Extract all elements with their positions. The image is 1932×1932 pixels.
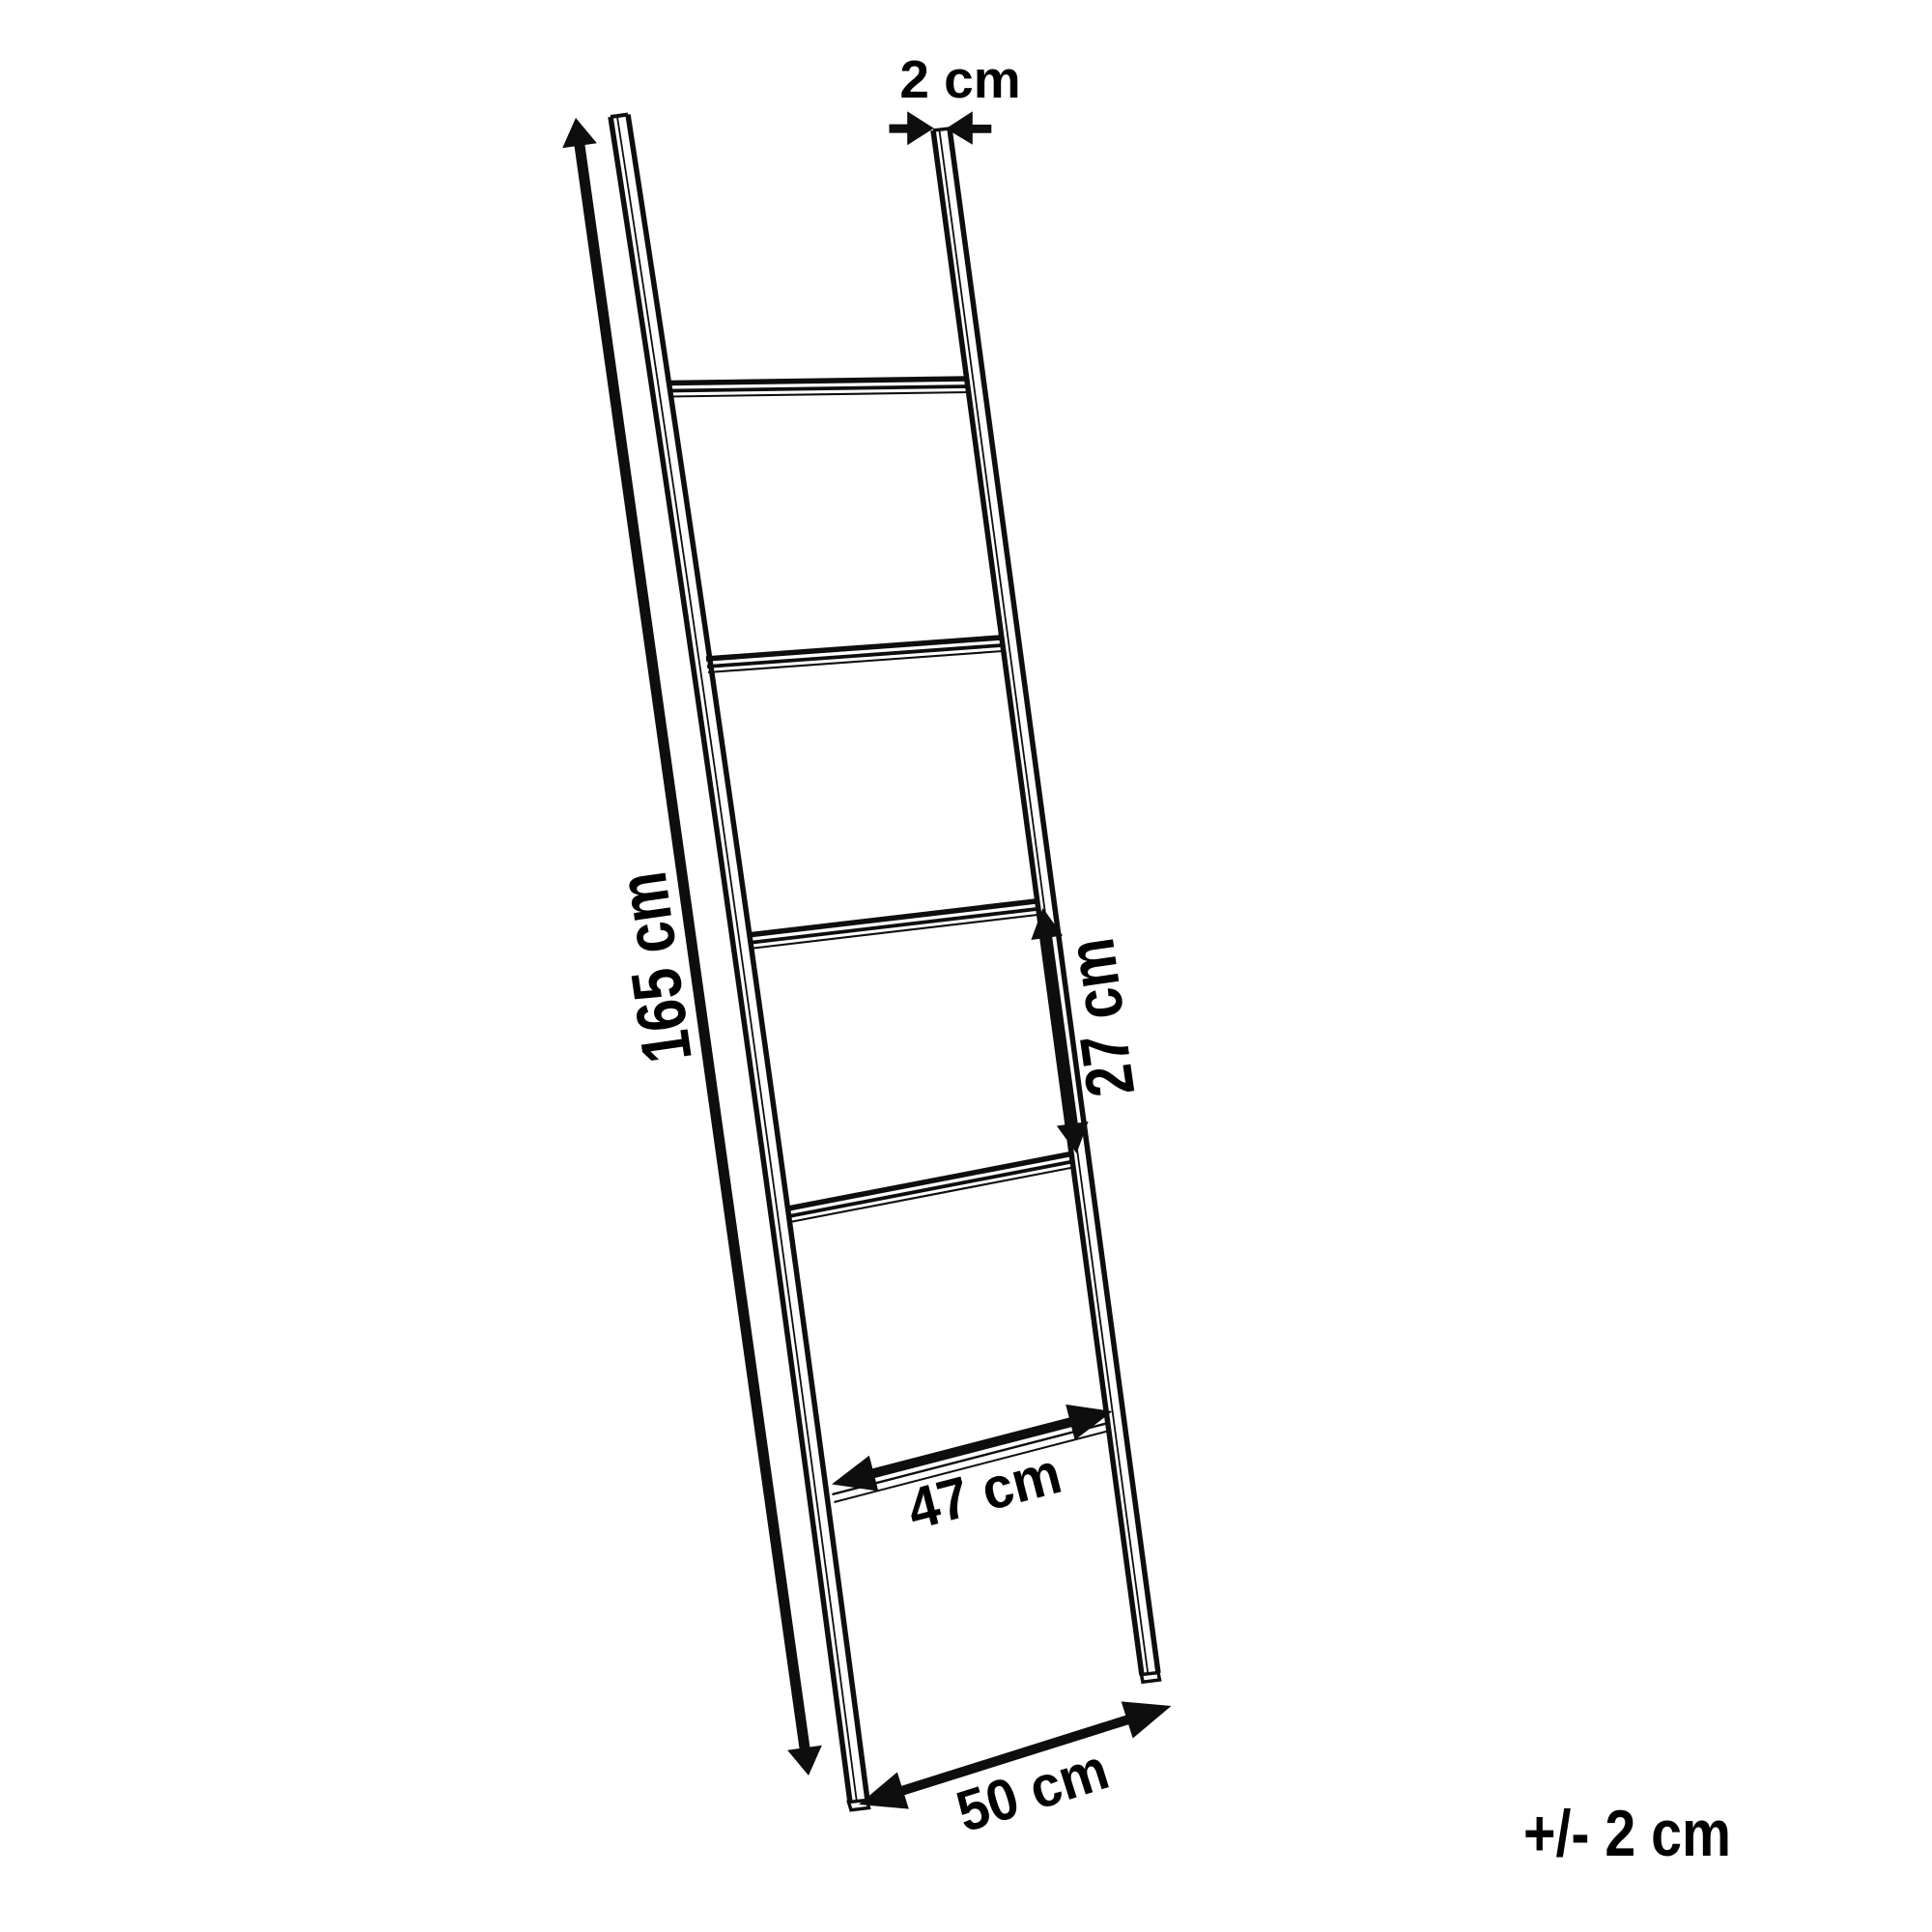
svg-text:+/- 2 cm: +/- 2 cm bbox=[1523, 1797, 1731, 1870]
svg-text:2 cm: 2 cm bbox=[899, 49, 1020, 109]
